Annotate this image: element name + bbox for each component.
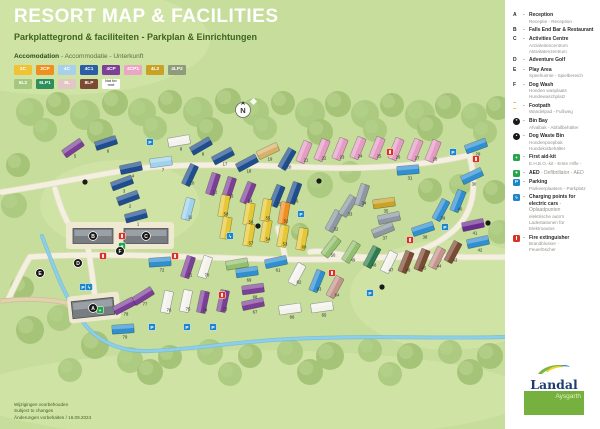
- park-name-box: Aysgarth: [524, 391, 584, 415]
- lodge-number: 68: [253, 295, 258, 300]
- facility-legend-item: E-Play AreaSpeelruimte - Spielbereich: [513, 67, 594, 80]
- facility-key-icon: ‒ ‒: [513, 103, 522, 116]
- p-marker-icon: P: [442, 224, 449, 231]
- accommodation-type-chip: 4C: [58, 65, 76, 75]
- p-marker-icon: P: [149, 324, 156, 331]
- bin-marker-icon: [485, 220, 490, 225]
- facility-translation: Afvalbak - Abfallbehälter: [529, 125, 594, 131]
- lodge-number: 41: [473, 231, 478, 236]
- svg-text:D: D: [76, 261, 80, 267]
- lodge-number: 67: [253, 310, 258, 315]
- facility-legend-item: ϟ-Charging points for electric cars - Op…: [513, 194, 594, 232]
- facility-translation: Receptie - Reception: [529, 19, 594, 25]
- dogbin-icon: •: [513, 133, 520, 140]
- facility-dash: -: [523, 57, 528, 64]
- facility-dash: -: [523, 27, 528, 34]
- lodge-marker: [149, 257, 172, 268]
- facility-key-icon: *: [513, 118, 522, 131]
- lodge-number: 18: [247, 169, 252, 174]
- lodge-marker: [112, 324, 135, 335]
- facility-key-letter: D: [513, 57, 522, 64]
- facility-title: Falls End Bar & Restaurant: [529, 27, 593, 33]
- p-marker-icon: P: [147, 139, 154, 146]
- facility-text: Charging points for electric cars - Opla…: [529, 194, 594, 232]
- lodge-number: 53: [283, 242, 288, 247]
- accommodation-type-chip: 8LP: [80, 79, 98, 89]
- footnote-line-3: Änderungen vorbehalten / 16.09.2024: [14, 415, 91, 421]
- p-icon: P: [513, 179, 520, 186]
- lodge-number: 27: [415, 156, 420, 161]
- facility-title: Footpath: [529, 103, 550, 109]
- facility-key-letter: E: [513, 67, 522, 80]
- facility-legend-item: +-First aid-kitE.H.B.O.-kit - Erste Hilf…: [513, 154, 594, 167]
- accommodation-type-chip: 4LP2: [168, 65, 186, 75]
- lodge-number: 11: [188, 215, 193, 220]
- svg-text:F: F: [118, 249, 121, 255]
- lodge-number: 40: [458, 207, 463, 212]
- facility-key-icon: +: [513, 154, 522, 167]
- fire-marker-icon: [407, 237, 414, 244]
- lodge-number: 23: [340, 155, 345, 160]
- map-footnote: Wijzigingen voorbehouden Subject to chan…: [14, 402, 91, 421]
- ev-marker-icon: ϟ: [86, 284, 93, 291]
- accommodation-type-chip: Not for rent: [102, 79, 120, 89]
- facility-dash: -: [523, 118, 528, 131]
- facility-title: Dog Waste Bin: [529, 133, 564, 139]
- facility-dash: -: [523, 103, 528, 116]
- lodge-number: 55: [266, 216, 271, 221]
- facility-legend-item: ♥-AED - Defibrillator - AED: [513, 170, 594, 177]
- facility-letter-D: D: [74, 259, 83, 268]
- facility-legend-item: A-ReceptionReceptie - Reception: [513, 12, 594, 25]
- lodge-number: 19: [268, 157, 273, 162]
- lodge-number: 70: [205, 273, 210, 278]
- lodge-number: 77: [143, 302, 148, 307]
- accommodation-type-chip: 4C1: [80, 65, 98, 75]
- svg-text:ϟ: ϟ: [229, 234, 232, 240]
- facility-translation: Elektroautos: [529, 226, 594, 232]
- facility-letter-A: A: [89, 304, 98, 313]
- accommodation-type-chip: 4L2: [146, 65, 164, 75]
- accommodation-type-chip: 4CP1: [124, 65, 142, 75]
- facility-key-letter: F: [513, 82, 522, 101]
- lodge-number: 45: [422, 266, 427, 271]
- facility-title: Reception: [529, 12, 553, 18]
- facility-key-letter: C: [513, 36, 522, 55]
- facility-text: First aid-kitE.H.B.O.-kit - Erste Hilfe …: [529, 154, 594, 167]
- facilities-list: A-ReceptionReceptie - ReceptionB-Falls E…: [513, 12, 594, 253]
- lodge-marker: [397, 165, 420, 176]
- landal-logo: Landal Aysgarth: [524, 362, 584, 415]
- lodge-number: 52: [284, 219, 289, 224]
- page-title: RESORT MAP & FACILITIES: [14, 6, 494, 28]
- fire-marker-icon: [172, 253, 179, 260]
- facility-title: Fire extinguisher: [529, 235, 569, 241]
- lodge-number: 38: [423, 235, 428, 240]
- lodge-number: 21: [304, 158, 309, 163]
- facility-dash: -: [523, 82, 528, 101]
- facility-inline-translation: - Defibrillator - AED: [540, 170, 584, 176]
- facility-dash: -: [523, 133, 528, 152]
- lodge-number: 63: [317, 287, 322, 292]
- lodge-number: 17: [223, 162, 228, 167]
- fire-marker-icon: [100, 253, 107, 260]
- facility-title: Dog Wash: [529, 82, 553, 88]
- lodge-number: 31: [408, 176, 413, 181]
- resort-map-page: 1234567891011121314151617181920212223242…: [0, 0, 600, 429]
- accommodation-chips: 2C2CP4C4C14CP4CP14L24LP26L26LP18L8LPNot …: [14, 65, 189, 89]
- accommodation-label: Accomodation - Accommodatie - Unterkunft: [14, 53, 494, 60]
- facility-legend-item: P-ParkingParkeerplaatsen - Parkplatz: [513, 179, 594, 192]
- facility-dash: -: [523, 194, 528, 232]
- facility-title: Activities Centre: [529, 36, 568, 42]
- facility-text: Dog Waste BinHondenpoepbakHundekotbehält…: [529, 133, 594, 152]
- facility-key-letter: A: [513, 12, 522, 25]
- lodge-number: 69: [247, 278, 252, 283]
- facility-key-icon: ♥: [513, 170, 522, 177]
- lodge-number: 32: [334, 227, 339, 232]
- lodge-number: 34: [362, 201, 367, 206]
- facility-letter-E: E: [36, 269, 45, 278]
- accommodation-label-bold: Accomodation: [14, 53, 59, 60]
- accommodation-type-chip: 4CP: [102, 65, 120, 75]
- facility-key-icon: [513, 235, 522, 254]
- footpath-icon: ‒ ‒: [513, 103, 520, 110]
- facility-text: Falls End Bar & Restaurant: [529, 27, 594, 34]
- p-marker-icon: P: [298, 211, 305, 218]
- facility-dash: -: [523, 170, 528, 177]
- p-marker-icon: P: [184, 324, 191, 331]
- ev-marker-icon: ϟ: [227, 233, 234, 240]
- facility-translation: Speelruimte - Spielbereich: [529, 73, 594, 79]
- svg-text:A: A: [91, 306, 95, 312]
- facility-dash: -: [523, 179, 528, 192]
- facility-dash: -: [523, 67, 528, 80]
- lodge-number: 24: [358, 154, 363, 159]
- lodge-number: 66: [290, 315, 295, 320]
- facility-text: Dog WashHonden wasplaatsHundewaschplatz: [529, 82, 594, 101]
- facility-translation: Aktivitätenzentrum: [529, 49, 594, 55]
- bin-marker-icon: [379, 284, 384, 289]
- facility-dash: -: [523, 235, 528, 254]
- lodge-number: 22: [322, 156, 327, 161]
- lodge-number: 75: [186, 307, 191, 312]
- lodge-number: 25: [377, 154, 382, 159]
- facility-letter-C: C: [142, 232, 151, 241]
- lodge-number: 26: [396, 155, 401, 160]
- facilities-sidebar: A-ReceptionReceptie - ReceptionB-Falls E…: [505, 0, 600, 429]
- facility-key-icon: •: [513, 133, 522, 152]
- svg-text:B: B: [91, 234, 95, 240]
- lodge-number: 46: [406, 268, 411, 273]
- lodge-number: 76: [167, 308, 172, 313]
- lodge-number: 10: [190, 181, 195, 186]
- landal-logo-card: Landal: [524, 362, 584, 391]
- map-header: RESORT MAP & FACILITIES Parkplattegrond …: [14, 6, 494, 89]
- park-name: Aysgarth: [555, 393, 581, 400]
- facility-translation: Feuerlöscher: [529, 247, 594, 253]
- facility-dash: -: [523, 12, 528, 25]
- lodge-number: 64: [335, 293, 340, 298]
- facility-translation: E.H.B.O.-kit - Erste Hilfe -: [529, 161, 594, 167]
- facility-text: FootpathWandelpad - Fußweg: [529, 103, 594, 116]
- fire-marker-icon: [387, 149, 394, 156]
- facility-legend-item: B-Falls End Bar & Restaurant: [513, 27, 594, 34]
- lodge-number: 20: [287, 165, 292, 170]
- lodge-number: 57: [249, 241, 254, 246]
- lodge-number: 33: [348, 212, 353, 217]
- facility-key-icon: ϟ: [513, 194, 522, 232]
- bin-marker-icon: [255, 223, 260, 228]
- ev-icon: ϟ: [513, 194, 520, 201]
- fire-marker-icon: [473, 156, 480, 163]
- facility-title: Adventure Golf: [529, 57, 565, 63]
- facility-text: Play AreaSpeelruimte - Spielbereich: [529, 67, 594, 80]
- lodge-number: 30: [472, 182, 477, 187]
- lodge-number: 48: [372, 263, 377, 268]
- landal-swoosh-icon: [534, 363, 574, 376]
- accommodation-type-chip: 6LP1: [36, 79, 54, 89]
- fire-marker-icon: [119, 233, 126, 240]
- bin-marker-icon: [82, 179, 87, 184]
- facility-legend-item: C-Activities CentreActiviteitencentrumAk…: [513, 36, 594, 55]
- svg-text:C: C: [144, 234, 148, 240]
- lodge-number: 49: [351, 258, 356, 263]
- lodge-number: 61: [276, 268, 281, 273]
- facility-text: Fire extinguisherBrandblusser -Feuerlösc…: [529, 235, 594, 254]
- accommodation-label-rest: - Accommodatie - Unterkunft: [59, 53, 143, 60]
- lodge-number: 62: [297, 280, 302, 285]
- facility-text: ParkingParkeerplaatsen - Parkplatz: [529, 179, 594, 192]
- fire-marker-icon: [329, 270, 336, 277]
- p-marker-icon: P: [367, 290, 374, 297]
- lodge-number: 43: [453, 258, 458, 263]
- lodge-number: 44: [437, 264, 442, 269]
- lodge-number: 71: [188, 273, 193, 278]
- facility-text: Activities CentreActiviteitencentrumAkti…: [529, 36, 594, 55]
- aid-icon: +: [513, 154, 520, 161]
- facility-legend-item: -Fire extinguisherBrandblusser -Feuerlös…: [513, 235, 594, 254]
- facility-title: Bin Bay: [529, 118, 548, 124]
- facility-title: Parking: [529, 179, 547, 185]
- facility-dash: -: [523, 154, 528, 167]
- svg-text:N: N: [240, 106, 245, 115]
- facility-letter-B: B: [89, 232, 98, 241]
- lodge-number: 37: [383, 236, 388, 241]
- facility-legend-item: ‒ ‒-FootpathWandelpad - Fußweg: [513, 103, 594, 116]
- lodge-number: 54: [266, 237, 271, 242]
- lodge-number: 79: [123, 335, 128, 340]
- facility-title: Charging points for electric cars: [529, 194, 575, 207]
- facility-text: Bin BayAfvalbak - Abfallbehälter: [529, 118, 594, 131]
- accommodation-type-chip: 8L: [58, 79, 76, 89]
- facility-text: Adventure Golf: [529, 57, 594, 64]
- facility-translation: Hundewaschplatz: [529, 94, 594, 100]
- lodge-number: 78: [124, 312, 129, 317]
- lodge-number: 28: [433, 157, 438, 162]
- facility-key-letter: B: [513, 27, 522, 34]
- p-marker-icon: P: [210, 324, 217, 331]
- facility-translation: Hundekotbehälter: [529, 146, 594, 152]
- facility-key-icon: P: [513, 179, 522, 192]
- lodge-number: 58: [224, 212, 229, 217]
- lodge-number: 73: [223, 307, 228, 312]
- lodge-number: 72: [160, 268, 165, 273]
- lodge-number: 16: [294, 199, 299, 204]
- aed-icon: ♥: [513, 170, 520, 177]
- svg-text:+: +: [99, 309, 102, 314]
- lodge-number: 39: [441, 216, 446, 221]
- facility-text: AED - Defibrillator - AED: [529, 170, 594, 177]
- lodge-number: 60: [302, 245, 307, 250]
- lodge-number: 50: [331, 253, 336, 258]
- lodge-number: 47: [389, 268, 394, 273]
- lodge-number: 42: [478, 248, 483, 253]
- facility-legend-item: F-Dog WashHonden wasplaatsHundewaschplat…: [513, 82, 594, 101]
- lodge-number: 12: [213, 190, 218, 195]
- facility-translation: Parkeerplaatsen - Parkplatz: [529, 186, 594, 192]
- facility-legend-item: •-Dog Waste BinHondenpoepbakHundekotbehä…: [513, 133, 594, 152]
- facility-title: Play Area: [529, 67, 552, 73]
- fire-icon: [513, 235, 520, 242]
- page-subtitle: Parkplattegrond & faciliteiten - Parkpla…: [14, 32, 494, 42]
- accommodation-type-chip: 6L2: [14, 79, 32, 89]
- bin-icon: *: [513, 118, 520, 125]
- facility-text: ReceptionReceptie - Reception: [529, 12, 594, 25]
- lodge-number: 65: [322, 313, 327, 318]
- facility-legend-item: D-Adventure Golf: [513, 57, 594, 64]
- facility-title: First aid-kit: [529, 154, 556, 160]
- bin-marker-icon: [316, 178, 321, 183]
- facility-dash: -: [523, 36, 528, 55]
- facility-letter-F: F: [116, 247, 125, 256]
- accommodation-type-chip: 2CP: [36, 65, 54, 75]
- accommodation-type-chip: 2C: [14, 65, 32, 75]
- p-marker-icon: P: [450, 149, 457, 156]
- svg-text:ϟ: ϟ: [88, 285, 91, 291]
- landal-brand-wordmark: Landal: [524, 379, 584, 392]
- facility-title: AED: [529, 170, 540, 176]
- lodge-number: 74: [203, 308, 208, 313]
- fire-marker-icon: [219, 292, 226, 299]
- facility-legend-item: *-Bin BayAfvalbak - Abfallbehälter: [513, 118, 594, 131]
- lodge-number: 35: [384, 209, 389, 214]
- facility-translation: Wandelpad - Fußweg: [529, 109, 594, 115]
